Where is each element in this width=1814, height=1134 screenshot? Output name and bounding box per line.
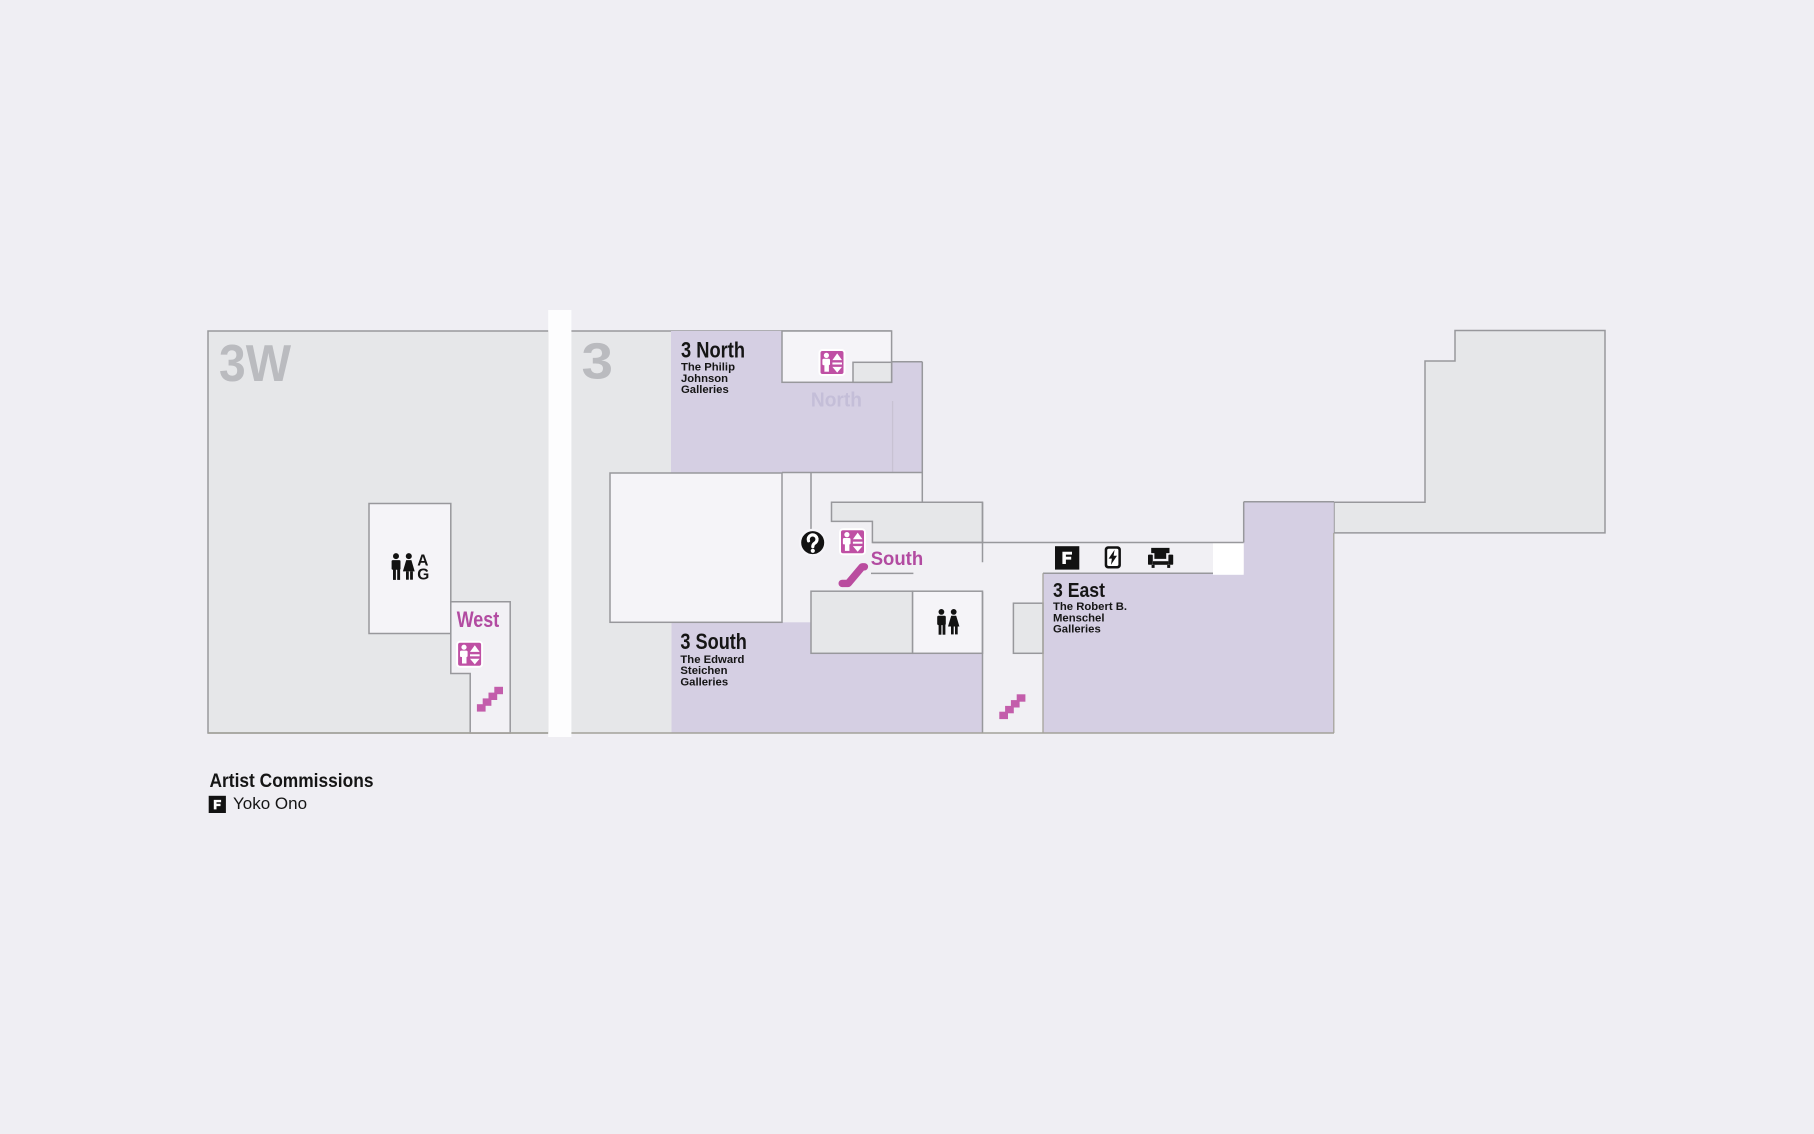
svg-text:Artist Commissions: Artist Commissions (210, 771, 374, 792)
svg-text:Steichen: Steichen (680, 665, 727, 677)
svg-text:North: North (811, 390, 862, 412)
svg-text:Galleries: Galleries (680, 676, 728, 688)
svg-text:3 East: 3 East (1053, 580, 1105, 602)
svg-text:The Robert B.: The Robert B. (1053, 601, 1127, 613)
svg-text:South: South (871, 549, 924, 570)
svg-text:Yoko Ono: Yoko Ono (233, 794, 307, 813)
svg-text:G: G (417, 567, 429, 584)
svg-text:Galleries: Galleries (1053, 624, 1101, 636)
svg-text:The Philip: The Philip (681, 362, 735, 374)
svg-text:Menschel: Menschel (1053, 612, 1104, 624)
svg-text:Galleries: Galleries (681, 384, 729, 396)
svg-text:3 South: 3 South (680, 629, 747, 654)
svg-text:3: 3 (582, 333, 614, 390)
svg-text:3 North: 3 North (681, 338, 745, 363)
svg-text:3W: 3W (219, 335, 292, 393)
svg-text:West: West (457, 607, 500, 632)
svg-text:Johnson: Johnson (681, 373, 728, 385)
svg-text:The Edward: The Edward (680, 654, 744, 666)
